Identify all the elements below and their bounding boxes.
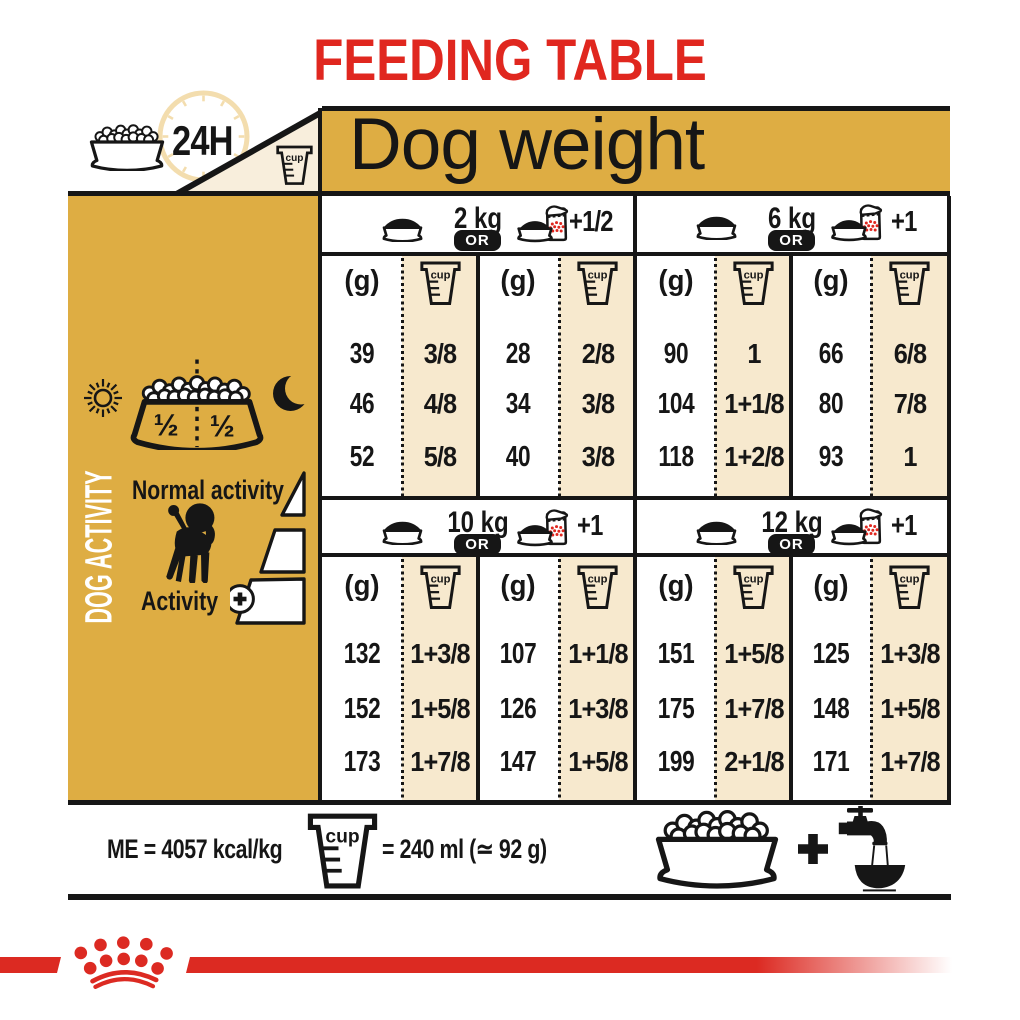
svg-text:½: ½ [154, 410, 179, 443]
svg-text:½: ½ [210, 410, 235, 443]
